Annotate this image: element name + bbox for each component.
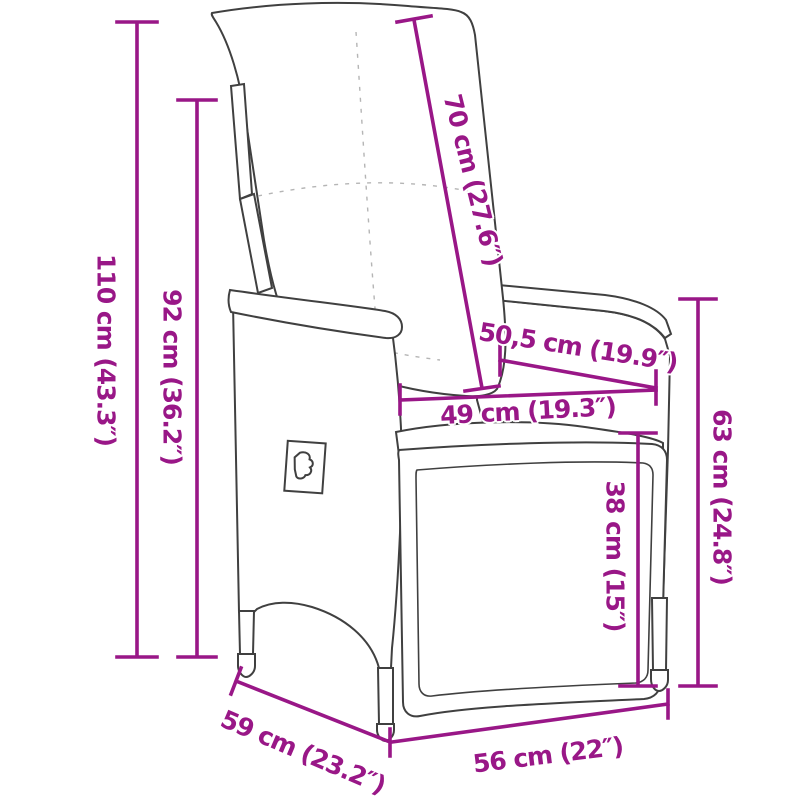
dimension-label-total-height: 110 cm (43.3″) <box>92 254 121 446</box>
dimension-diagram: 110 cm (43.3″) 92 cm (36.2″) 70 cm (27.6… <box>0 0 800 800</box>
side-panel-wicker <box>233 304 402 668</box>
dimension-label-footrest-height: 38 cm (15″) <box>601 481 630 632</box>
dimension-label-frame-height: 92 cm (36.2″) <box>158 289 187 465</box>
dimension-line-110cm <box>117 22 157 657</box>
dimension-label-side-height: 63 cm (24.8″) <box>708 409 737 585</box>
